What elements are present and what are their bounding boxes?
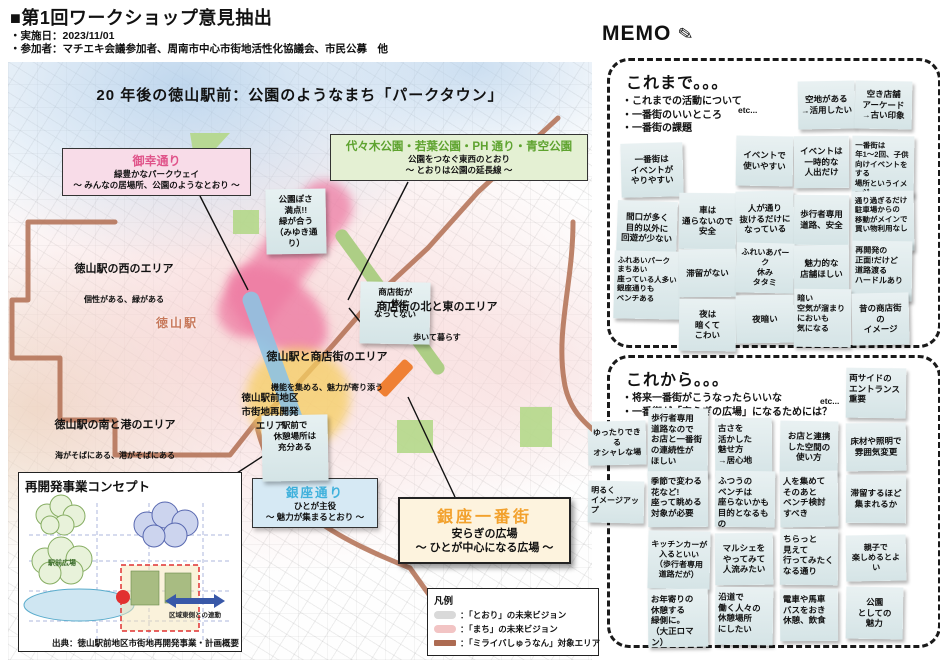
sticky-note: 電車や馬車 バスをおき 休憩、飲食: [780, 589, 838, 642]
map-sticky-note: 公園ぽさ 満点!! 緑が合う （みゆき通り）: [265, 188, 326, 254]
focus-dot: [116, 590, 130, 604]
memo-etc: etc...: [738, 105, 757, 115]
sticky-note: 人を集めて そのあと ベンチ検討 すべき: [780, 471, 839, 528]
callout-title: 御幸通り: [65, 152, 248, 169]
legend-items: ：「とおり」の未来ビジョン：「まち」の未来ビジョン：「ミライバしゅうなん」対象エ…: [434, 609, 592, 649]
callout-ginza-ichibangai: 銀座一番街 安らぎの広場 ～ ひとが中心になる広場 ～: [398, 497, 571, 564]
callout-line: ～ ひとが中心になる広場 ～: [402, 541, 567, 555]
sticky-note: 夜暗い: [736, 294, 795, 343]
sticky-note: 沿道で 働く人々の 休憩場所 にしたい: [715, 587, 774, 646]
map-panel: 20 年後の徳山駅前：公園のようなまち「パークタウン」 御幸通り 緑豊かなパーク…: [8, 62, 592, 660]
callout-line: ～ 魅力が集まるとおり ～: [255, 512, 375, 523]
blue-cloud: [134, 502, 198, 547]
legend-label: ：「ミライバしゅうなん」対象エリア: [460, 637, 600, 649]
page-title: ■第1回ワークショップ意見抽出: [10, 4, 388, 30]
pencil-icon: ✎: [676, 23, 695, 46]
sticky-note: 空地がある →活用したい: [798, 81, 856, 130]
memo-section-bullets: ・これまでの活動について ・一番街のいいところ ・一番街の課題: [622, 95, 742, 136]
inset-diagram: 駅前広場 区域東側との連動: [19, 473, 241, 651]
sticky-note: 暗い 空気が溜まり においも 気になる: [794, 289, 852, 347]
sticky-note: 両サイドの エントランス 重要: [846, 368, 907, 419]
callout-line: 公園をつなぐ東西のとおり: [333, 154, 585, 165]
header-participants: ・参加者：マチエキ会議参加者、周南市中心市街地活性化協議会、市民公募 他: [10, 43, 388, 56]
sticky-note: イベントで 使いやすい: [736, 136, 794, 187]
memo-section-heading: これまで。。。: [626, 69, 728, 93]
sticky-note: 古さを 活かした 魅せ方 →居心地: [715, 418, 773, 477]
station-name-label: 徳山駅: [156, 314, 198, 331]
inset-caption: 出典：徳山駅前地区市街地再開発事業・計画概要: [19, 637, 239, 649]
sticky-note: 滞留するほど 集まれるか: [846, 475, 906, 524]
sticky-note: 一番街は 年1～2回、子供 向けイベントをする 場所というイメージ: [852, 136, 915, 197]
callout-line: ひとが主役: [255, 501, 375, 512]
legend-swatch: [434, 625, 456, 633]
sticky-note: お店と連携 した空間の 使い方: [780, 421, 839, 474]
sticky-note: 一番街は イベントが やりやすい: [620, 142, 683, 198]
sticky-note: 滞留がない: [679, 249, 736, 298]
sticky-note: お年寄りの 休憩する 緑側に。 （大正ロマン）: [648, 589, 709, 648]
sticky-note: ふつうの ベンチは 座らないかも 目的となるもの: [715, 471, 776, 528]
building-block: [131, 571, 159, 605]
sticky-note: 季節で変わる 花など! 座って眺める 対象が必要: [648, 471, 708, 528]
legend-item: ：「まち」の未来ビジョン: [434, 623, 592, 635]
area-label-south-port: 徳山駅の南と港のエリア 海がそばにある、港がそばにある: [35, 398, 195, 479]
sticky-note: イベントは 一時的な 人出だけ: [794, 136, 849, 188]
callout-line: ～ みんなの居場所、公園のようなとおり ～: [65, 180, 248, 191]
sticky-note: キッチンカーが 入るといい （歩行者専用 道路だが）: [647, 530, 710, 589]
legend-item: ：「ミライバしゅうなん」対象エリア: [434, 637, 592, 649]
callout-miyuki-street: 御幸通り 緑豊かなパークウェイ ～ みんなの居場所、公園のようなとおり ～: [62, 148, 251, 196]
callout-parks-street: 代々木公園・若葉公園・PH 通り・青空公園 公園をつなぐ東西のとおり ～ とおり…: [330, 134, 588, 181]
sticky-note: ちらっと 見えて 行ってみたく なる通り: [780, 529, 839, 586]
sticky-note: 空き店舗 アーケード →古い印象: [855, 81, 913, 130]
legend-swatch: [434, 611, 456, 619]
sticky-note: 歩行者専用 道路、安全: [794, 195, 849, 245]
legend-title: 凡例: [434, 593, 592, 607]
sticky-note: 魅力的な 店舗ほしい: [794, 245, 849, 293]
memo-title: MEMO ✎: [602, 22, 694, 46]
sticky-note: 明るく イメージアップ: [588, 481, 645, 524]
sticky-note: 間口が多く 目的以外に 回遊が少ない: [616, 200, 678, 256]
sticky-note: 歩行者専用 道路なので お店と一番街 の連続性が ほしい: [648, 408, 709, 477]
redevelopment-concept-inset: 駅前広場 区域東側との連動 再開発事業コンセプト 出典：徳山駅前地区市街地再開発…: [18, 472, 242, 652]
sticky-note: ゆったりできる オシャレな場: [588, 420, 647, 465]
sticky-note: 親子で 楽しめるとよい: [846, 534, 907, 581]
header: ■第1回ワークショップ意見抽出 ・実施日：2023/11/01 ・参加者：マチエ…: [10, 4, 388, 56]
callout-title: 銀座通り: [255, 482, 375, 501]
green-cloud-small: [36, 495, 85, 535]
sticky-note: マルシェを やってみて 人流みたい: [715, 533, 774, 586]
sticky-note: 公園 としての 魅力: [846, 587, 904, 640]
area-label-west: 徳山駅の西のエリア 個性がある、緑がある: [44, 242, 204, 323]
memo-section-future: これから。。。 ・将来一番街がこうなったらいいな ・一番街が「安らぎの広場」にな…: [607, 355, 940, 648]
workshop-sheet: { "header": { "title": "■第1回ワークショップ意見抽出"…: [0, 0, 940, 665]
sticky-note: 夜は 暗くて こわい: [679, 299, 737, 352]
map-vision-title: 20 年後の徳山駅前：公園のようなまち「パークタウン」: [8, 84, 592, 105]
callout-title: 代々木公園・若葉公園・PH 通り・青空公園: [333, 138, 585, 154]
header-date: ・実施日：2023/11/01: [10, 30, 388, 43]
sticky-note: 人が通り 抜けるだけに なっている: [735, 190, 794, 247]
callout-line: 安らぎの広場: [402, 527, 567, 541]
inset-title: 再開発事業コンセプト: [25, 476, 150, 495]
sticky-note: 昔の商店街 の イメージ: [851, 292, 909, 345]
callout-ginza-street: 銀座通り ひとが主役 ～ 魅力が集まるとおり ～: [252, 478, 378, 528]
inset-label-east-link: 区域東側との連動: [169, 610, 221, 619]
sticky-note: 床材や照明で 雰囲気変更: [846, 423, 907, 472]
legend-label: ：「まち」の未来ビジョン: [460, 623, 558, 635]
callout-title: 銀座一番街: [402, 503, 567, 527]
memo-section-past: これまで。。。 ・これまでの活動について ・一番街のいいところ ・一番街の課題 …: [607, 58, 940, 348]
callout-line: ～ とおりは公園の延長線 ～: [333, 165, 585, 176]
inset-label-ekimae-hiroba: 駅前広場: [48, 558, 76, 567]
legend-item: ：「とおり」の未来ビジョン: [434, 609, 592, 621]
sticky-note: 車は 通らないので 安全: [679, 193, 737, 250]
sticky-note: ふれあいパーク まちあい 座っている人多い 銀座通りも ベンチある: [613, 250, 680, 319]
legend-label: ：「とおり」の未来ビジョン: [460, 609, 566, 621]
memo-section-heading: これから。。。: [626, 366, 729, 390]
map-legend: 凡例 ：「とおり」の未来ビジョン：「まち」の未来ビジョン：「ミライバしゅうなん」…: [427, 588, 599, 656]
sticky-note: ふれいあパーク 休み タタミ: [735, 242, 794, 293]
legend-swatch: [434, 640, 456, 646]
callout-line: 緑豊かなパークウェイ: [65, 169, 248, 180]
memo-etc: etc...: [820, 396, 839, 406]
area-label-redevelopment: 徳山駅前地区 市街地再開発 エリア: [220, 372, 320, 450]
